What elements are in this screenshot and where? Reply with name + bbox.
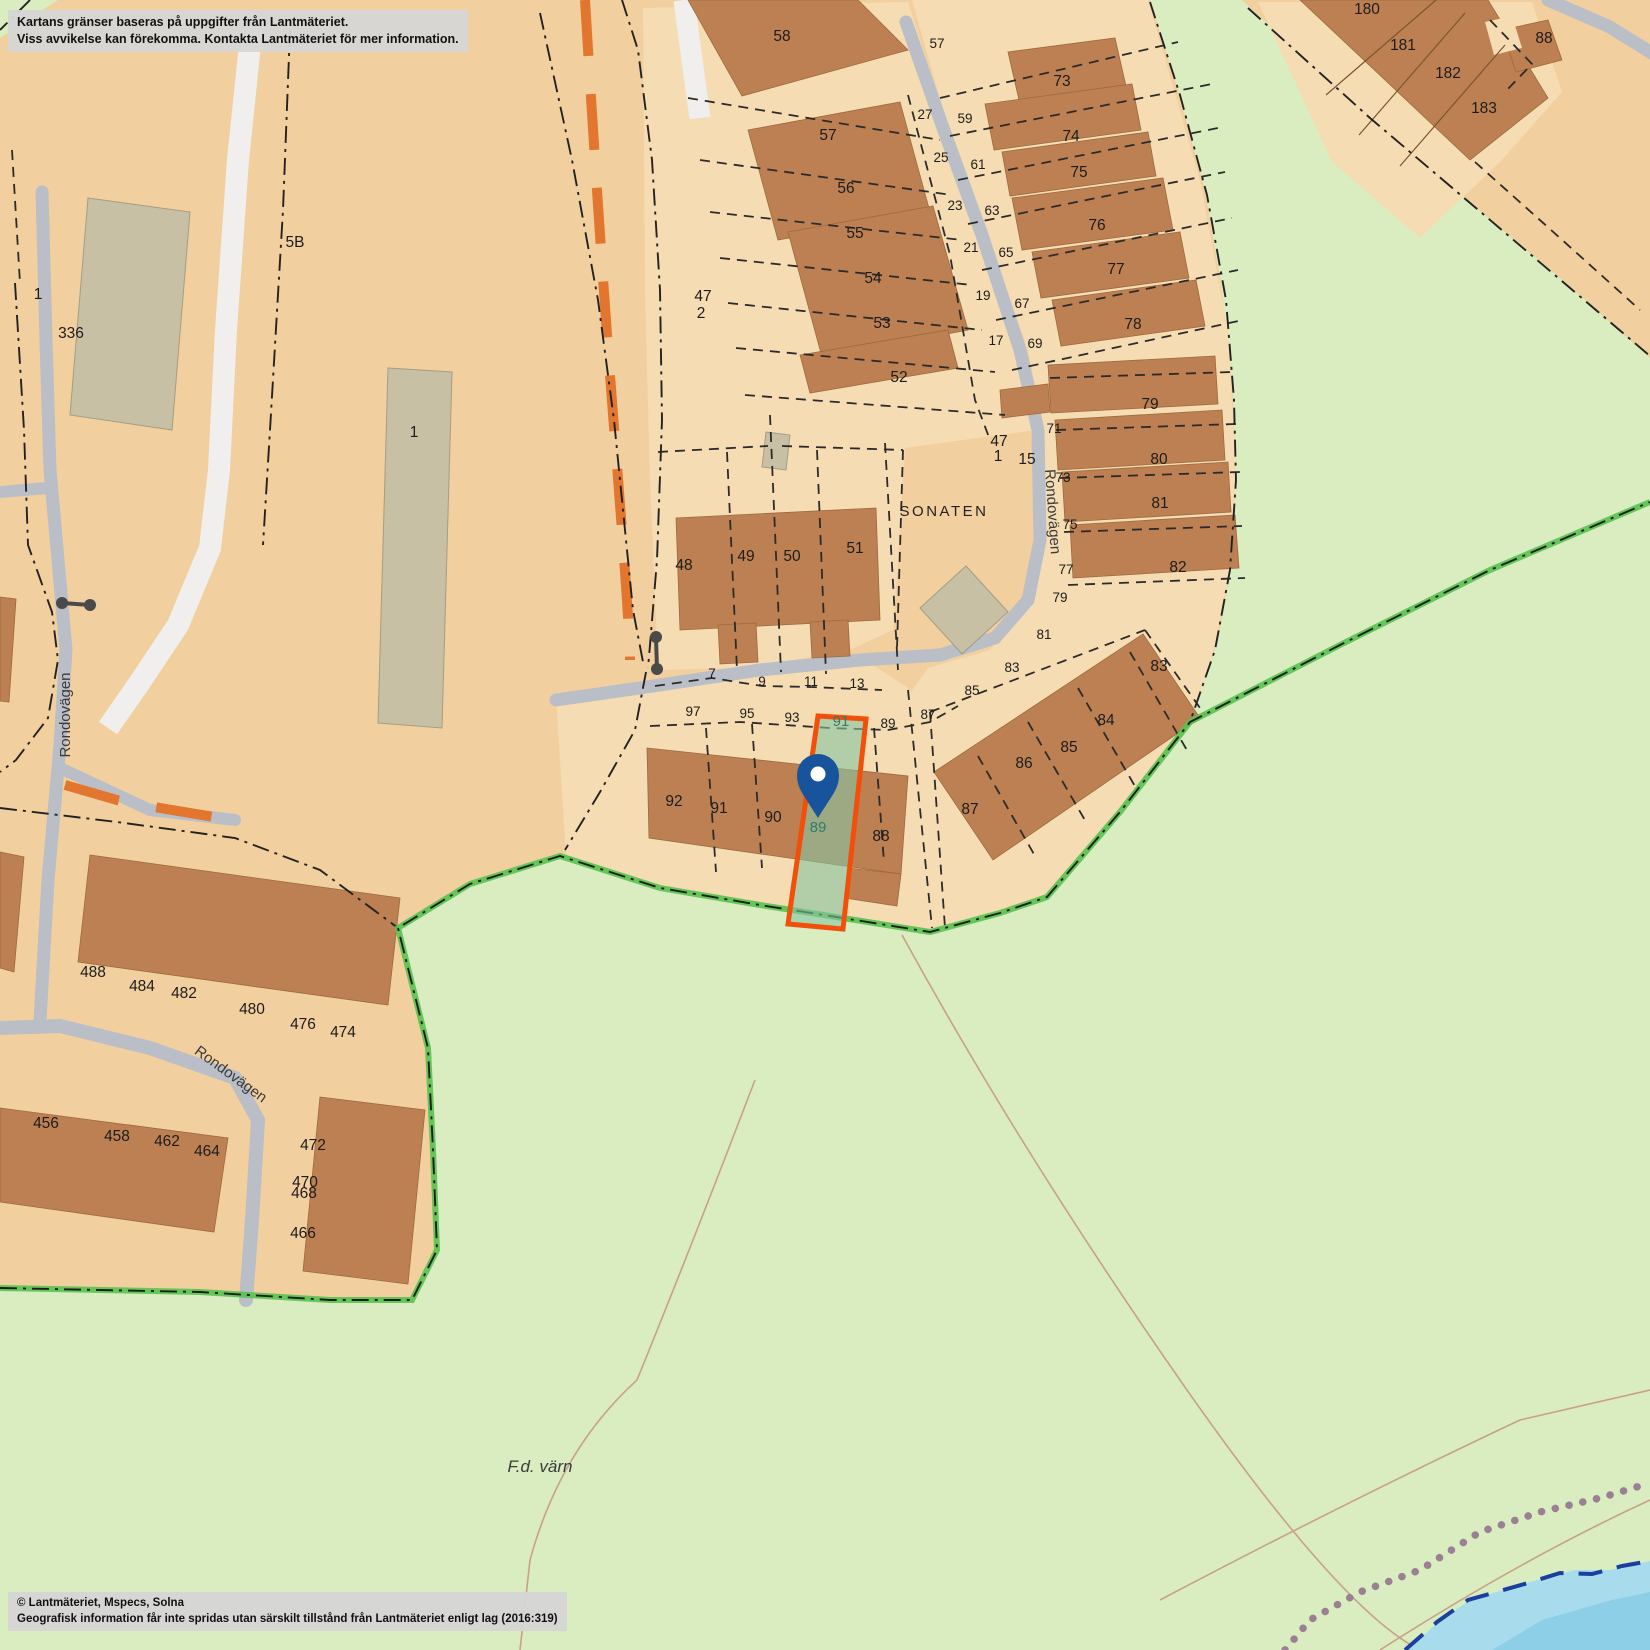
address-number: 79 [1052,590,1067,605]
parcel-label: 74 [1062,128,1080,145]
parcel-label: 87 [961,801,978,818]
parcel-label: 464 [194,1143,220,1160]
parcel-label: 180 [1354,1,1380,18]
parcel-label: 49 [737,548,754,565]
address-number: 61 [970,157,985,172]
address-number: 87 [920,707,935,722]
parcel-label: 83 [1150,658,1167,675]
map-disclaimer: Kartans gränser baseras på uppgifter frå… [8,10,468,52]
parcel-label: 484 [129,978,155,995]
parcel-label: 456 [33,1115,59,1132]
parcel-label: 474 [330,1024,356,1041]
map-canvas[interactable]: 5857565554535247248495051737475767778798… [0,0,1650,1650]
parcel-label: 488 [80,964,106,981]
parcel-label: 480 [239,1001,265,1018]
parcel-label: 50 [783,548,801,565]
address-number: 11 [804,674,818,689]
parcel-label: 76 [1088,217,1105,234]
address-number: 63 [984,203,999,218]
parcel-label: 82 [1169,559,1186,576]
parcel-label: 182 [1435,65,1461,82]
parcel-label: 181 [1390,37,1416,54]
address-number: 17 [988,333,1003,348]
parcel-label: 90 [764,809,782,826]
parcel-label: 1 [410,424,419,441]
parcel-label: 462 [154,1133,180,1150]
parcel-label: 52 [890,369,907,386]
parcel-label: 88 [872,828,889,845]
parcel-label: 86 [1015,755,1032,772]
address-number: 95 [739,706,754,721]
map-viewport[interactable]: 5857565554535247248495051737475767778798… [0,0,1650,1650]
address-number: 69 [1027,336,1042,351]
address-number: 93 [784,710,799,725]
parcel-label: 468 [291,1185,317,1202]
parcel-label: 85 [1060,739,1077,756]
parcel-label: 78 [1124,316,1141,333]
street-label: F.d. värn [508,1457,573,1476]
parcel-label: 79 [1141,396,1158,413]
parcel-label: 476 [290,1016,316,1033]
address-number: 27 [917,107,932,122]
parcel-label: 336 [58,325,84,342]
address-number: 85 [964,683,979,698]
parcel-label: 88 [1535,30,1552,47]
address-number: 71 [1046,421,1061,436]
parcel-label: 92 [665,793,682,810]
parcel-label: 472 [300,1137,326,1154]
address-number: 19 [975,288,990,303]
map-copyright: © Lantmäteriet, Mspecs, Solna Geografisk… [8,1592,567,1631]
address-number: 23 [947,198,962,213]
parcel-label: 73 [1053,73,1070,90]
highlighted-parcel-label: 91 [833,713,850,730]
address-number: 21 [963,240,978,255]
parcel-label: 51 [846,540,863,557]
parcel-label: 80 [1150,451,1168,468]
address-number: 7 [708,666,716,681]
address-number: 25 [933,150,948,165]
parcel-label: 77 [1107,261,1124,278]
parcel-label: 15 [1018,451,1035,468]
parcel-label: 84 [1097,712,1115,729]
parcel-label: 2 [697,305,706,322]
parcel-label: 55 [846,225,863,242]
street-label: Rondovägen [57,672,74,757]
address-number: 13 [849,676,864,691]
parcel-label: 58 [773,28,790,45]
parcel-label: 91 [710,800,727,817]
parcel-label: 183 [1471,100,1497,117]
parcel-label: 482 [171,985,197,1002]
address-number: 65 [998,245,1013,260]
parcel-label: 53 [873,315,890,332]
parcel-label: 48 [675,557,692,574]
address-number: 81 [1036,627,1051,642]
parcel-label: 466 [290,1225,316,1242]
parcel-label: 1 [994,448,1003,465]
street-label: SONATEN [900,503,989,520]
highlighted-parcel-label: 89 [810,819,827,836]
address-number: 77 [1058,562,1073,577]
parcel-label: 5B [286,234,305,251]
address-number: 9 [758,674,766,689]
disclaimer-line2: Viss avvikelse kan förekomma. Kontakta L… [17,31,459,48]
address-number: 59 [957,111,972,126]
parcel-label: 81 [1151,495,1168,512]
parcel-label: 56 [837,180,854,197]
address-number: 89 [880,716,895,731]
copyright-line2: Geografisk information får inte spridas … [17,1612,558,1628]
parcel-label: 54 [864,270,882,287]
address-number: 57 [929,36,944,51]
address-number: 75 [1062,517,1077,532]
address-number: 97 [685,704,700,719]
address-number: 67 [1014,296,1029,311]
parcel-label: 458 [104,1128,130,1145]
address-number: 83 [1004,660,1019,675]
parcel-label: 75 [1070,164,1087,181]
parcel-label: 1 [34,286,43,303]
parcel-label: 47 [694,288,711,305]
disclaimer-line1: Kartans gränser baseras på uppgifter frå… [17,14,459,31]
parcel-label: 57 [819,127,836,144]
copyright-line1: © Lantmäteriet, Mspecs, Solna [17,1596,558,1612]
